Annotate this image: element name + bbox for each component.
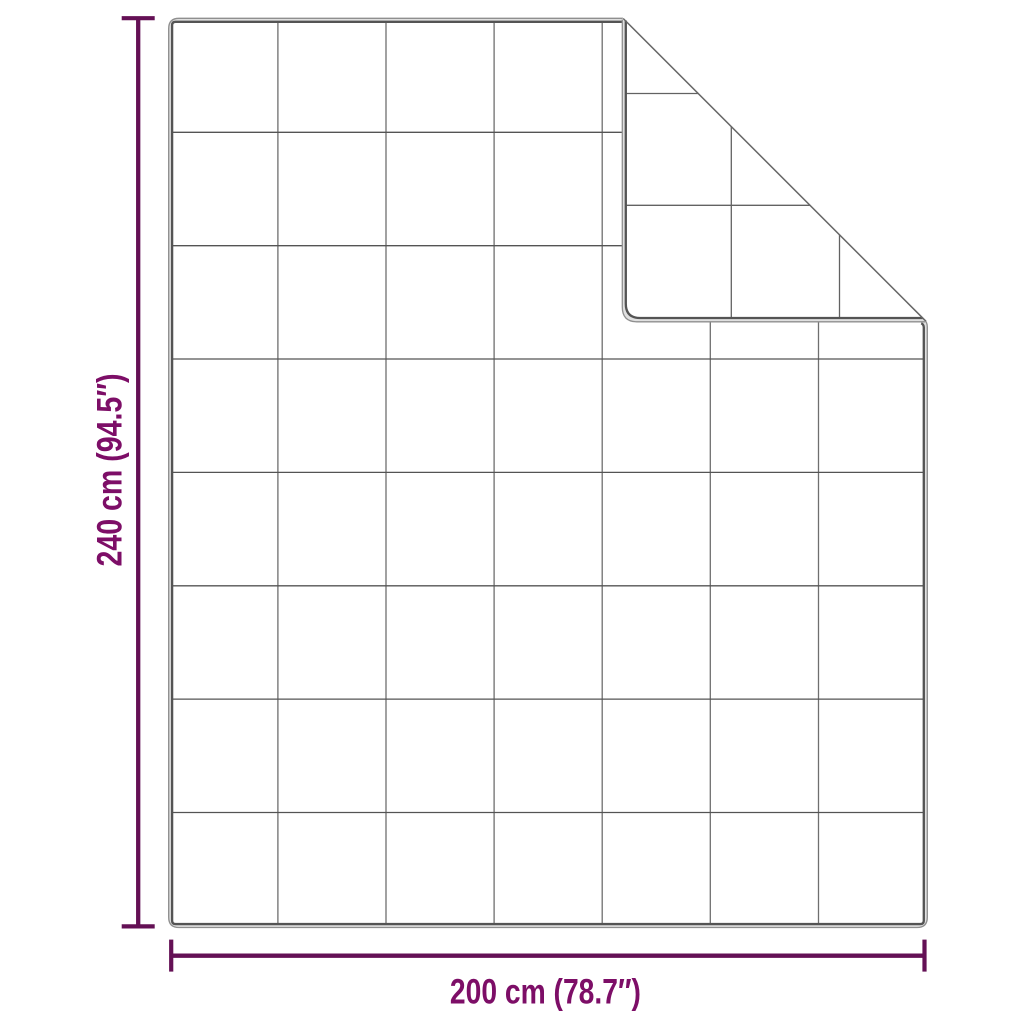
svg-text:200 cm (78.7″): 200 cm (78.7″) <box>450 972 641 1012</box>
svg-text:240 cm (94.5″): 240 cm (94.5″) <box>89 374 129 567</box>
